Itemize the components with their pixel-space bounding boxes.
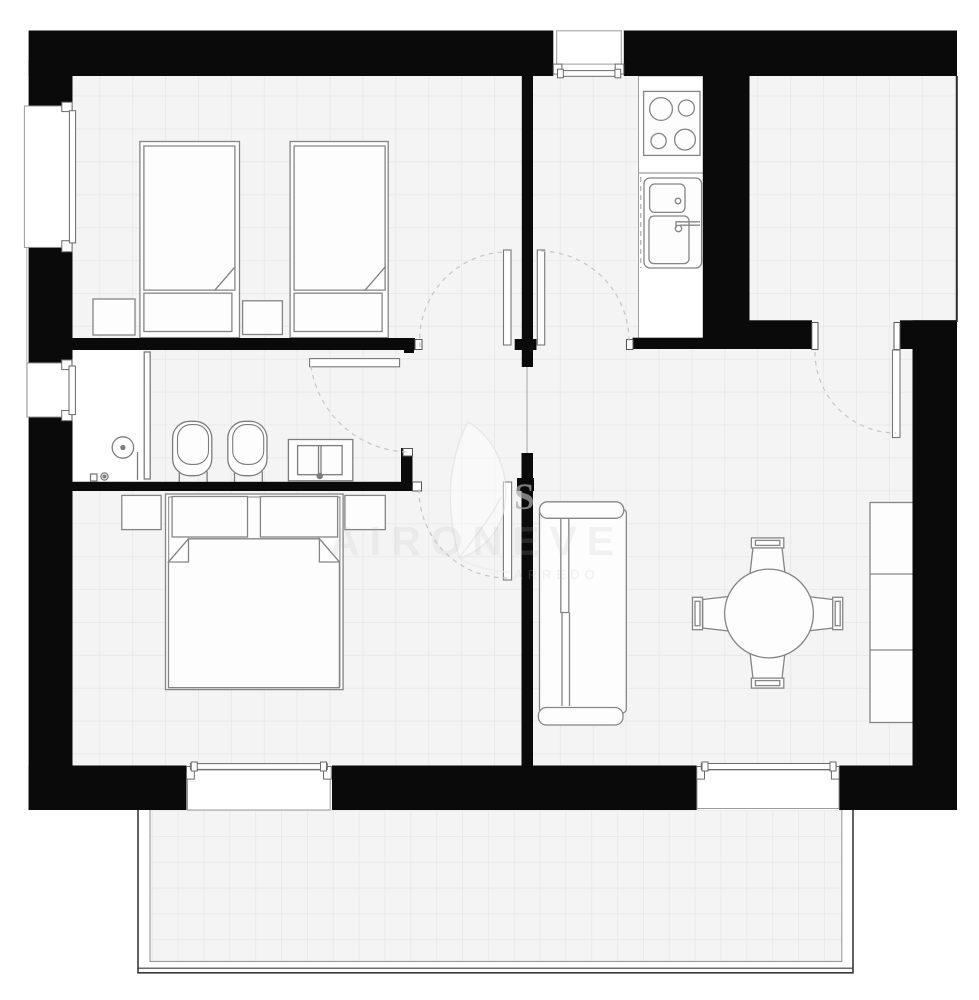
svg-text:S: S (514, 477, 535, 518)
svg-text:AIRONEVE: AIRONEVE (330, 518, 624, 564)
svg-text:ARREDO: ARREDO (514, 567, 600, 582)
